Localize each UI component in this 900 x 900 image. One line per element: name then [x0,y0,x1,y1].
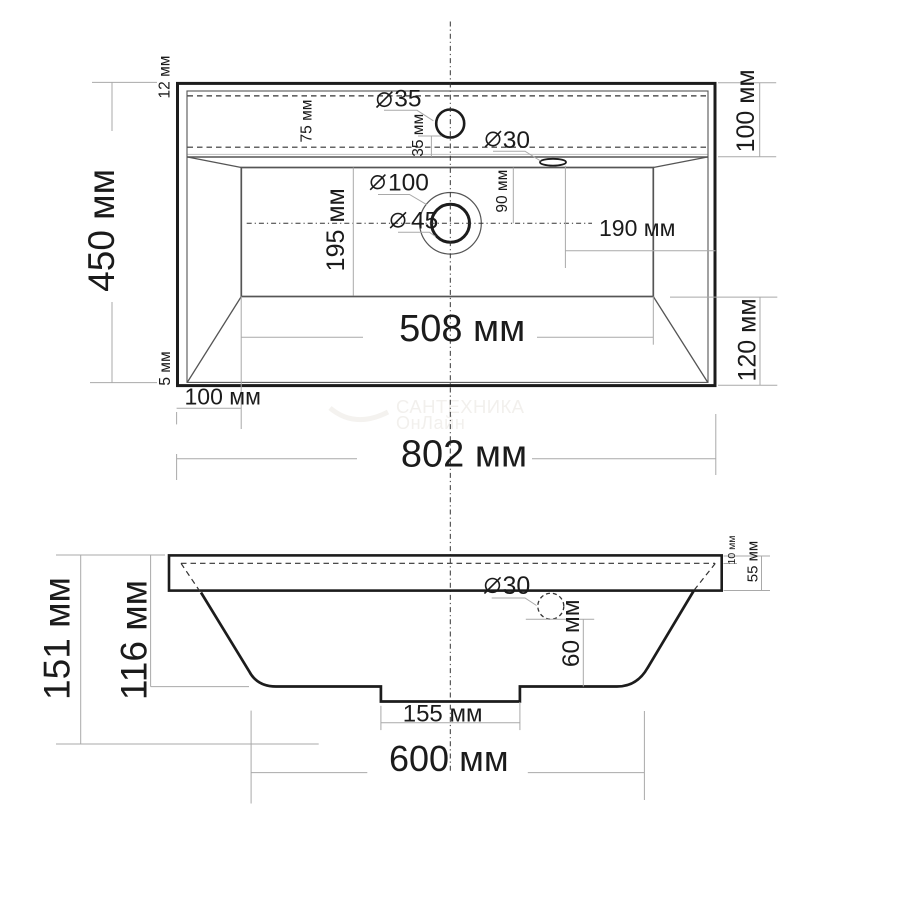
svg-text:5 мм: 5 мм [157,351,174,385]
svg-text:120 мм: 120 мм [733,298,761,381]
svg-text:802 мм: 802 мм [401,434,527,476]
svg-text:10 мм: 10 мм [726,535,738,564]
svg-text:35: 35 [394,85,421,112]
svg-text:75 мм: 75 мм [299,100,316,143]
svg-text:30: 30 [503,572,531,600]
svg-text:100 мм: 100 мм [185,384,261,410]
svg-text:508 мм: 508 мм [399,308,525,350]
svg-text:55 мм: 55 мм [745,541,762,582]
svg-text:155 мм: 155 мм [403,701,483,728]
svg-text:195 мм: 195 мм [322,188,350,271]
svg-text:190 мм: 190 мм [599,215,675,241]
svg-text:ОнЛайн: ОнЛайн [396,413,465,433]
svg-text:116 мм: 116 мм [114,580,155,700]
svg-text:60 мм: 60 мм [558,599,585,667]
svg-text:30: 30 [503,127,530,154]
svg-text:90 мм: 90 мм [494,170,511,213]
svg-text:35 мм: 35 мм [410,114,427,157]
svg-text:450 мм: 450 мм [81,169,122,292]
svg-text:12 мм: 12 мм [157,56,174,99]
svg-text:151 мм: 151 мм [37,577,78,700]
svg-text:600 мм: 600 мм [389,738,509,779]
svg-text:100 мм: 100 мм [732,69,760,152]
svg-text:45: 45 [411,208,438,235]
svg-text:100: 100 [388,169,429,196]
